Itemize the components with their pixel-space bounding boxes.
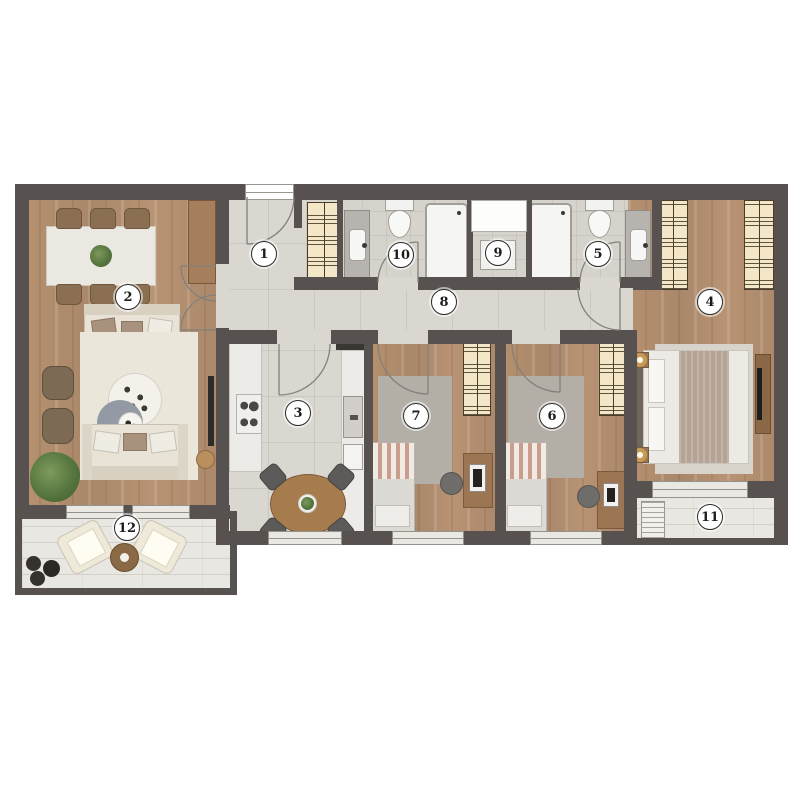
room-number: 1 bbox=[259, 247, 268, 262]
door-arc bbox=[512, 344, 560, 392]
room-badge-balcony-living: 12 bbox=[114, 515, 140, 541]
room-badge-entrance: 1 bbox=[251, 241, 277, 267]
room-number: 7 bbox=[411, 409, 420, 424]
room-badge-ensuite-bathroom: 5 bbox=[585, 241, 611, 267]
door-arcs-overlay bbox=[0, 0, 800, 800]
room-badge-bathroom: 10 bbox=[388, 242, 414, 268]
room-badge-bedroom-2: 6 bbox=[539, 403, 565, 429]
door-arc bbox=[279, 344, 330, 395]
room-number: 4 bbox=[705, 295, 714, 310]
room-badge-balcony-bedroom: 11 bbox=[697, 504, 723, 530]
door-arc bbox=[378, 344, 428, 394]
room-number: 12 bbox=[118, 521, 136, 536]
room-badge-bedroom-1: 7 bbox=[403, 403, 429, 429]
room-badge-hallway: 8 bbox=[431, 289, 457, 315]
room-number: 6 bbox=[547, 409, 556, 424]
room-number: 11 bbox=[701, 510, 719, 525]
room-number: 10 bbox=[392, 248, 410, 263]
room-badge-living-room: 2 bbox=[115, 284, 141, 310]
room-badge-shaft: 9 bbox=[485, 240, 511, 266]
room-number: 2 bbox=[123, 290, 132, 305]
room-number: 8 bbox=[439, 295, 448, 310]
room-badge-kitchen: 3 bbox=[285, 400, 311, 426]
room-number: 3 bbox=[293, 406, 302, 421]
room-number: 9 bbox=[493, 246, 502, 261]
room-number: 5 bbox=[593, 247, 602, 262]
door-arc bbox=[578, 288, 620, 330]
room-badge-master-bedroom: 4 bbox=[697, 289, 723, 315]
floor-plan: 1 2 3 4 5 6 7 8 9 10 11 12 bbox=[0, 0, 800, 800]
door-arc bbox=[247, 197, 294, 244]
